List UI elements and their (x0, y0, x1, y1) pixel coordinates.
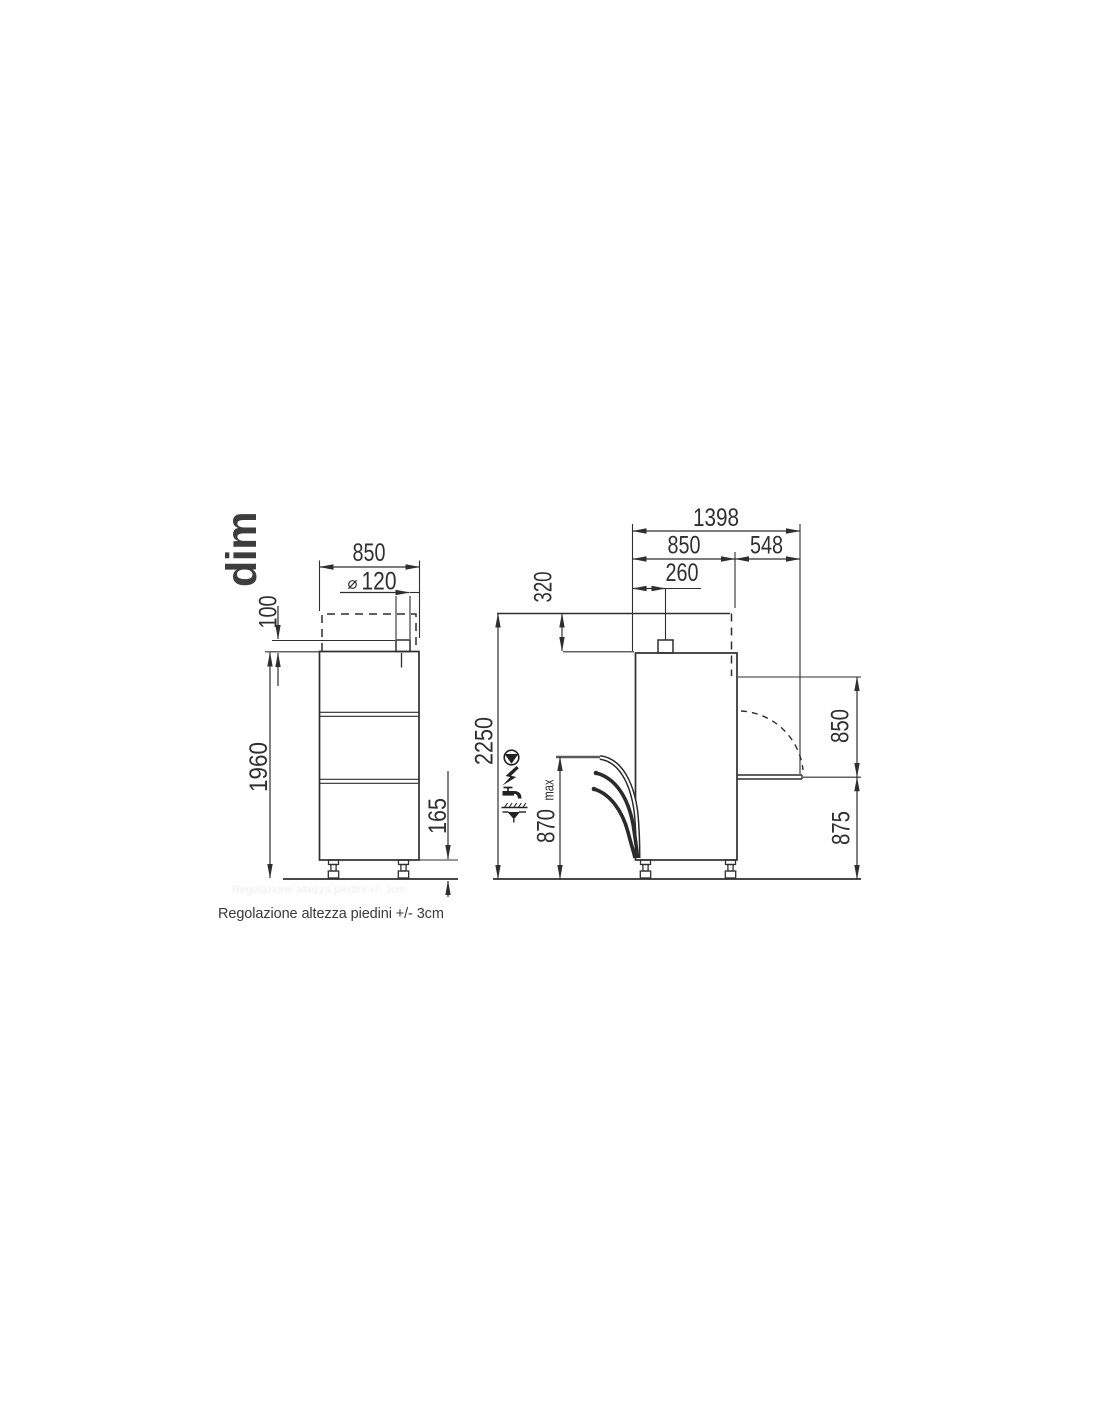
page-title: dim (218, 512, 266, 587)
diameter-icon (348, 580, 356, 589)
side-door-swing-arc (741, 711, 803, 770)
side-foot-right (725, 860, 735, 878)
front-view-outline (283, 614, 458, 879)
front-view-dimensions: 850 120 100 1960 (245, 539, 458, 897)
front-vent-diameter-label: 120 (362, 568, 397, 596)
front-vent-stub (396, 640, 410, 652)
side-view: 1398 850 548 260 320 2250 870 m (471, 504, 862, 879)
front-foot-left (328, 860, 338, 878)
front-height-label: 1960 (245, 742, 273, 792)
side-vent-offset-label: 260 (666, 559, 699, 587)
electric-connection-icon (503, 766, 519, 786)
front-view: 850 120 100 1960 (245, 539, 458, 897)
water-inlet-faucet-icon (503, 788, 522, 799)
drain-outlet-icon (502, 803, 528, 823)
dimension-drawing: dim (0, 0, 1100, 1422)
side-table-height-label: 875 (828, 811, 856, 845)
front-feet-height-label: 165 (424, 798, 452, 834)
utility-icons (502, 750, 528, 822)
side-table-extension-label: 548 (750, 532, 783, 560)
side-total-depth-label: 1398 (693, 504, 739, 532)
side-body-depth-label: 850 (668, 532, 701, 560)
side-table (737, 775, 802, 779)
side-connections-height-suffix: max (541, 779, 558, 800)
drain-pump-icon (504, 750, 519, 765)
feet-adjustment-note: Regolazione altezza piedini +/- 3cm (218, 906, 444, 922)
technical-drawing-page: dim (0, 0, 1100, 1422)
side-total-height-label: 2250 (471, 717, 499, 765)
side-foot-left (640, 860, 650, 878)
front-width-label: 850 (353, 539, 386, 567)
side-hood-opening-label: 850 (827, 709, 855, 743)
side-hood-travel-label: 320 (530, 572, 558, 603)
front-vent-height-label: 100 (255, 596, 283, 629)
front-hood-raised-dashed (322, 614, 416, 651)
front-foot-right (398, 860, 408, 878)
connection-hoses (556, 757, 638, 858)
side-vent-stub (658, 640, 673, 653)
ghost-print-artifact: Regolazione altezza piedini +/- 3cm (232, 884, 447, 896)
side-view-dimensions: 1398 850 548 260 320 2250 870 m (471, 504, 862, 879)
side-connections-height-label: 870 (533, 809, 561, 843)
